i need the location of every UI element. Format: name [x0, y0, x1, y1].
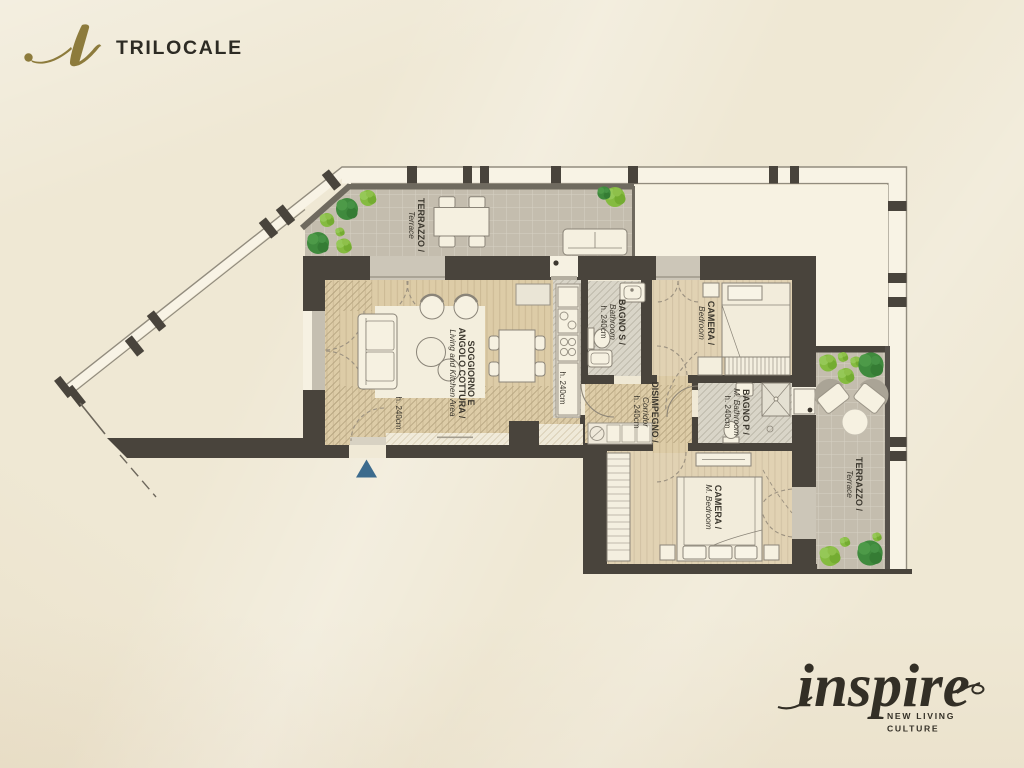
- svg-text:Bathroom: Bathroom: [608, 304, 618, 340]
- svg-text:NEW LIVING: NEW LIVING: [887, 711, 955, 721]
- svg-text:h. 240cm: h. 240cm: [723, 396, 732, 429]
- svg-text:h. 240cm: h. 240cm: [394, 397, 403, 430]
- svg-text:M. Bedroom: M. Bedroom: [704, 484, 714, 529]
- svg-text:Corridor: Corridor: [641, 397, 651, 428]
- svg-text:h. 240cm: h. 240cm: [599, 306, 608, 339]
- svg-text:h. 240cm: h. 240cm: [632, 396, 641, 429]
- svg-text:Terrace: Terrace: [845, 470, 855, 498]
- svg-text:Living and Kitchen Area: Living and Kitchen Area: [448, 329, 458, 417]
- svg-text:CULTURE: CULTURE: [887, 724, 939, 734]
- svg-text:TRILOCALE: TRILOCALE: [116, 37, 243, 59]
- svg-text:inspire: inspire: [797, 653, 970, 720]
- svg-text:Bedroom: Bedroom: [697, 306, 707, 340]
- svg-text:M. Bathroom: M. Bathroom: [732, 388, 742, 436]
- svg-text:Terrace: Terrace: [407, 211, 417, 239]
- svg-text:h. 240cm: h. 240cm: [558, 372, 567, 405]
